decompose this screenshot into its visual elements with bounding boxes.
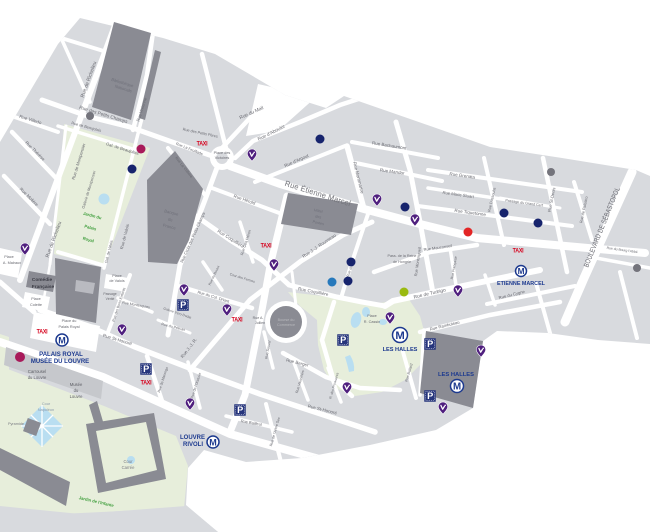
svg-text:Rue A.: Rue A. — [253, 316, 264, 320]
svg-text:TAXI: TAXI — [261, 242, 272, 250]
svg-text:Place: Place — [367, 314, 377, 318]
svg-text:P: P — [180, 300, 186, 310]
svg-text:du Louvre: du Louvre — [28, 375, 47, 380]
svg-text:du: du — [74, 388, 79, 393]
svg-text:TAXI: TAXI — [197, 140, 208, 148]
svg-text:P: P — [237, 405, 243, 415]
svg-text:Commerce: Commerce — [277, 323, 295, 327]
svg-text:Pyramide: Pyramide — [8, 422, 24, 426]
svg-text:P: P — [340, 335, 346, 345]
svg-text:Napoléon: Napoléon — [38, 408, 54, 412]
svg-text:Place: Place — [31, 297, 41, 301]
svg-text:M: M — [518, 267, 525, 276]
svg-text:P: P — [143, 364, 149, 374]
svg-text:Musée: Musée — [70, 382, 83, 387]
svg-text:de Valois: de Valois — [109, 279, 124, 283]
svg-text:Place des: Place des — [214, 151, 231, 155]
svg-text:M: M — [395, 330, 404, 342]
svg-text:de Hongrie: de Hongrie — [393, 260, 411, 264]
svg-text:Cour: Cour — [123, 459, 133, 464]
svg-text:Carrée: Carrée — [122, 465, 135, 470]
svg-text:Pass. de la Reine: Pass. de la Reine — [388, 254, 417, 258]
svg-text:Jullien: Jullien — [255, 321, 265, 325]
svg-text:Cour: Cour — [42, 402, 51, 406]
svg-text:M: M — [453, 382, 461, 393]
svg-text:Colette: Colette — [30, 303, 42, 307]
svg-text:TAXI: TAXI — [513, 247, 524, 255]
svg-text:Bourse du: Bourse du — [278, 318, 295, 322]
svg-text:LES HALLES: LES HALLES — [438, 372, 474, 378]
svg-text:Place: Place — [112, 274, 122, 278]
svg-text:Comédie: Comédie — [32, 277, 53, 283]
svg-text:P: P — [427, 339, 433, 349]
svg-text:PALAIS ROYAL: PALAIS ROYAL — [39, 352, 83, 358]
svg-text:LOUVRE: LOUVRE — [180, 435, 205, 441]
svg-text:P: P — [427, 391, 433, 401]
svg-text:Palais Royal: Palais Royal — [58, 325, 79, 329]
svg-text:RIVOLI: RIVOLI — [183, 442, 203, 448]
svg-text:M: M — [209, 437, 217, 447]
svg-text:MUSÉE DU LOUVRE: MUSÉE DU LOUVRE — [31, 357, 89, 365]
svg-text:A. Malraux: A. Malraux — [3, 261, 21, 265]
svg-text:ETIENNE MARCEL: ETIENNE MARCEL — [497, 281, 546, 287]
svg-text:Passage: Passage — [103, 292, 116, 296]
svg-text:TAXI: TAXI — [141, 379, 152, 387]
svg-text:Carrousel: Carrousel — [28, 369, 46, 374]
svg-text:TAXI: TAXI — [37, 328, 48, 336]
svg-text:LES HALLES: LES HALLES — [383, 347, 418, 353]
svg-text:TAXI: TAXI — [232, 316, 243, 324]
svg-text:Place du: Place du — [62, 319, 77, 323]
svg-text:Vérité: Vérité — [106, 297, 115, 301]
svg-text:R. Cassin: R. Cassin — [364, 320, 380, 324]
svg-text:Victoires: Victoires — [215, 156, 230, 160]
svg-text:Française: Française — [32, 284, 55, 290]
svg-text:Place: Place — [4, 255, 14, 259]
svg-text:M: M — [58, 335, 66, 345]
svg-text:Louvre: Louvre — [70, 394, 83, 399]
